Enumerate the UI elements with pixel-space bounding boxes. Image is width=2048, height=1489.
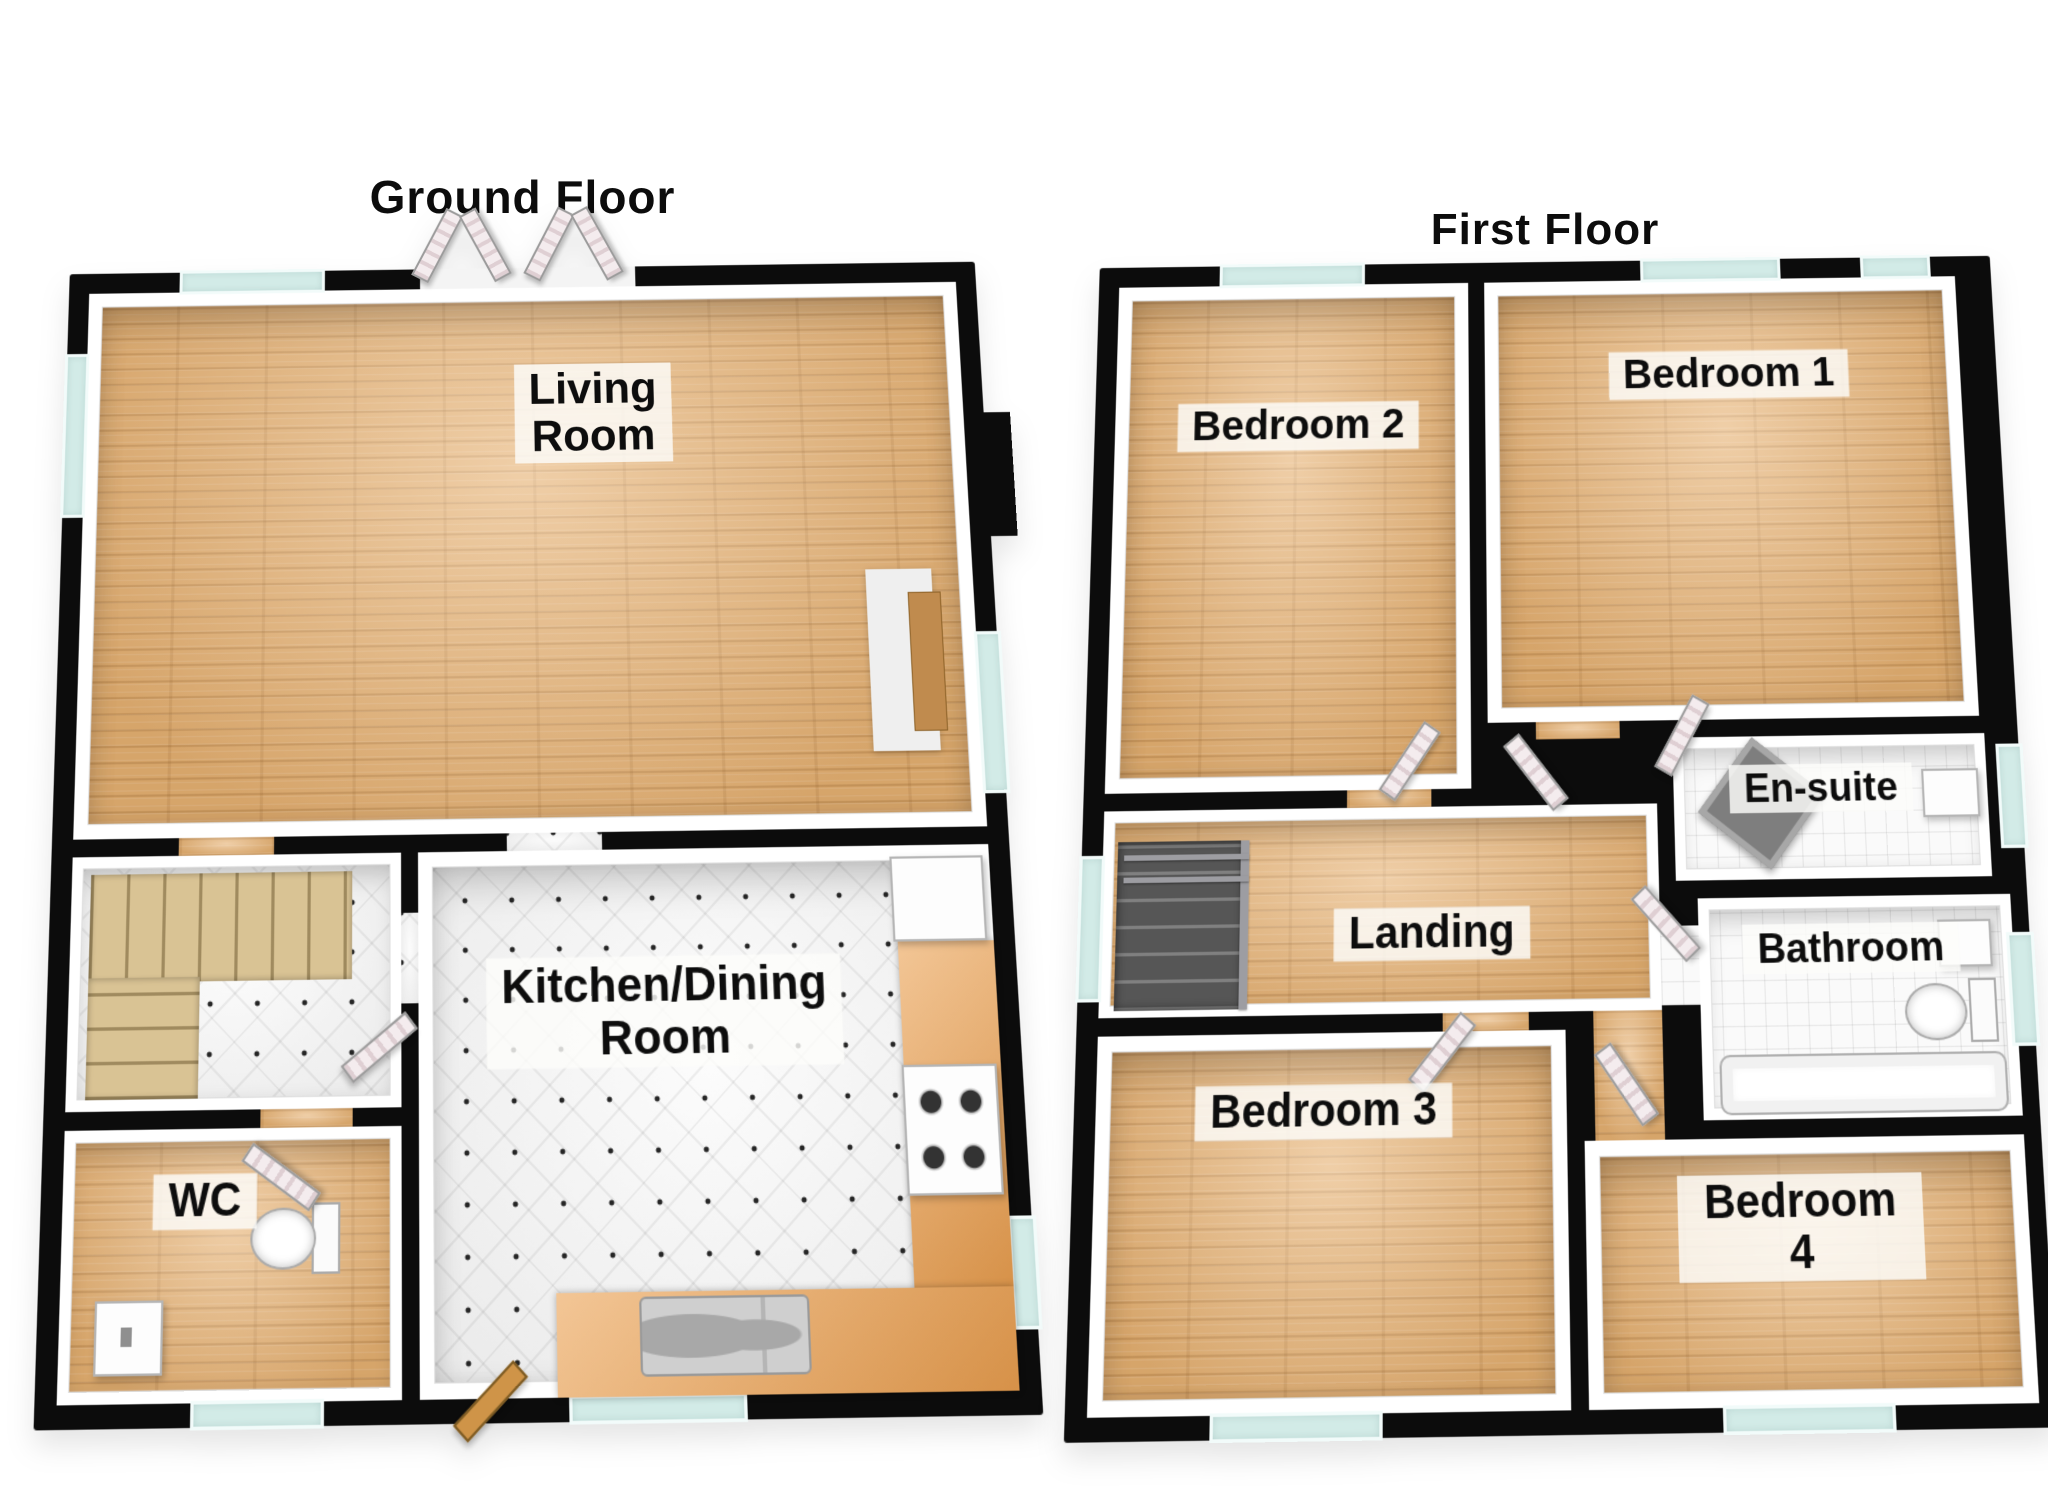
ground-floor-plan-3d: Living Room Kitchen/Dining Room WC [34, 262, 1044, 1431]
living-room-label: Living Room [514, 362, 673, 463]
window-glass [2006, 932, 2040, 1046]
window-glass [1723, 1403, 1897, 1435]
window-glass [60, 354, 89, 518]
window-glass [1219, 263, 1365, 289]
bedroom-3-label-text: Bedroom 3 [1210, 1084, 1437, 1139]
window-glass [1995, 743, 2028, 848]
room-bedroom-2 [1105, 283, 1472, 794]
landing-label: Landing [1334, 906, 1530, 962]
room-bedroom-1 [1484, 276, 1979, 723]
bathtub [1719, 1051, 2009, 1116]
kitchen-sink [639, 1294, 812, 1377]
staircase-lower-flight [85, 977, 200, 1100]
window-glass [1209, 1411, 1382, 1443]
bedroom-1-label: Bedroom 1 [1608, 349, 1849, 400]
door-opening-bedroom1 [1536, 721, 1620, 740]
ground-floor-title-text: Ground Floor [370, 171, 676, 223]
ensuite-basin [1921, 768, 1980, 817]
kitchen-dining-label: Kitchen/Dining Room [486, 953, 845, 1069]
bedroom-3-label: Bedroom 3 [1194, 1083, 1452, 1142]
ground-floor-plan: Living Room Kitchen/Dining Room WC [70, 268, 975, 1313]
first-floor-title: First Floor [1100, 205, 1990, 255]
wc-sink-tap [120, 1327, 132, 1347]
toilet-cistern [1968, 978, 1999, 1043]
first-floor-plan-3d: Bedroom 2 Bedroom 1 En-suite Bathroom La… [1064, 256, 2048, 1443]
en-suite-label: En-suite [1729, 762, 1914, 813]
bedroom-4-label-text: Bedroom 4 [1703, 1174, 1897, 1279]
first-floor-plan: Bedroom 2 Bedroom 1 En-suite Bathroom La… [1100, 262, 1990, 1322]
window-glass [179, 269, 325, 295]
bedroom-2-label-text: Bedroom 2 [1192, 402, 1405, 450]
wc-label: WC [152, 1173, 256, 1230]
window-glass [1860, 255, 1931, 280]
living-room-label-text: Living Room [528, 364, 657, 462]
bedroom-1-label-text: Bedroom 1 [1623, 350, 1836, 398]
en-suite-label-text: En-suite [1743, 764, 1898, 811]
window-glass [569, 1392, 748, 1424]
ground-floor-title: Ground Floor [70, 170, 975, 224]
fridge [889, 855, 987, 941]
wc-label-text: WC [168, 1175, 242, 1228]
bathroom-label: Bathroom [1742, 922, 1961, 975]
door-opening-hall-kitchen [401, 913, 418, 1004]
bathroom-label-text: Bathroom [1757, 923, 1946, 972]
bedroom-2-label: Bedroom 2 [1177, 401, 1418, 453]
window-glass [1640, 257, 1781, 283]
first-floor-title-text: First Floor [1431, 205, 1660, 254]
door-opening-hall-wc [260, 1108, 352, 1128]
door-opening-living-hall [179, 837, 275, 856]
door-opening-living-kitchen [507, 832, 602, 851]
stairwell-void [1114, 840, 1246, 1011]
chimney-breast [980, 412, 1018, 536]
window-glass [1075, 856, 1105, 1003]
bedroom-4-label: Bedroom 4 [1677, 1172, 1927, 1283]
stove-hob [902, 1064, 1004, 1196]
window-glass [190, 1399, 324, 1431]
landing-label-text: Landing [1349, 907, 1515, 959]
kitchen-dining-label-text: Kitchen/Dining Room [501, 955, 828, 1066]
staircase-upper-flight [88, 871, 352, 983]
